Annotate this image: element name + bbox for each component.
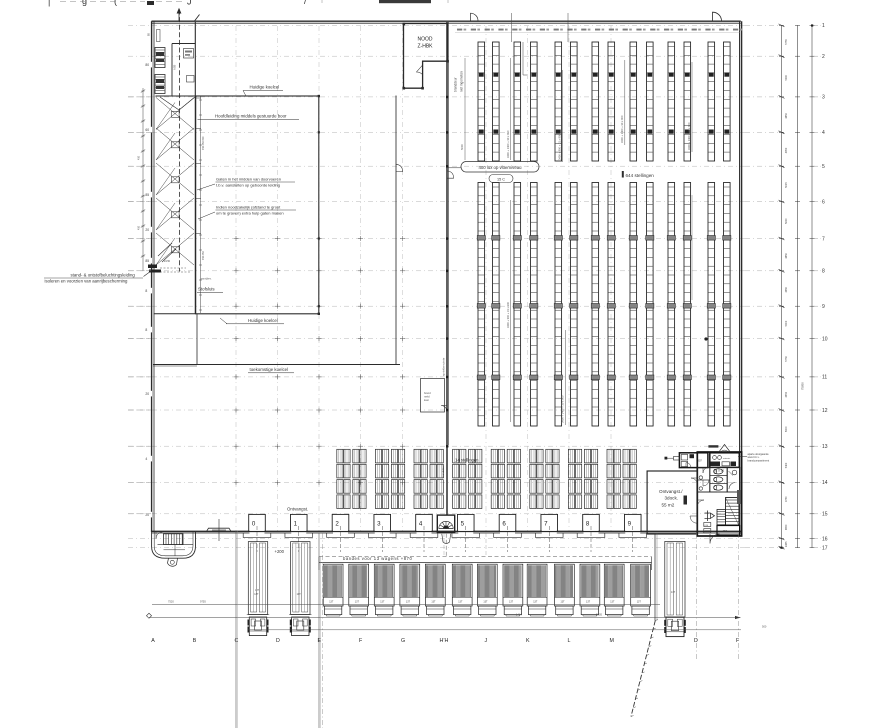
svg-text:D: D xyxy=(276,638,280,644)
svg-text:7: 7 xyxy=(822,236,825,242)
svg-text:85: 85 xyxy=(145,193,149,197)
svg-text:4: 4 xyxy=(145,457,147,461)
svg-text:3400 + 1400 + 30 x 900: 3400 + 1400 + 30 x 900 xyxy=(561,395,565,423)
svg-text:14: 14 xyxy=(822,480,828,486)
svg-text:t.b.v. aansluiten op geboorde: t.b.v. aansluiten op geboorde leiding xyxy=(216,183,280,188)
svg-text:isoleren en voorzien van aanri: isoleren en voorzien van aanrijbeschermi… xyxy=(45,279,128,284)
svg-text:13T: 13T xyxy=(533,601,538,604)
svg-text:urinoirs: urinoirs xyxy=(723,457,731,460)
svg-text:Stofsluis: Stofsluis xyxy=(198,286,215,291)
svg-text:484: 484 xyxy=(723,529,728,533)
svg-text:12: 12 xyxy=(822,408,828,414)
svg-text:13T: 13T xyxy=(586,601,591,604)
svg-text:sprinklerruimte: sprinklerruimte xyxy=(442,357,446,376)
svg-text:60: 60 xyxy=(145,128,149,132)
svg-text:H’H: H’H xyxy=(440,638,449,644)
svg-text:80: 80 xyxy=(145,63,149,67)
svg-text:13T: 13T xyxy=(610,601,615,604)
svg-text:Gaten in het midden van doorvo: Gaten in het midden van doorvoeren xyxy=(216,177,281,182)
svg-text:13T: 13T xyxy=(509,601,514,604)
svg-text:5755: 5755 xyxy=(785,39,788,45)
svg-text:15: 15 xyxy=(822,512,828,518)
svg-text:3400 + 1400 + 30 x 900: 3400 + 1400 + 30 x 900 xyxy=(620,115,624,143)
svg-text:8: 8 xyxy=(145,289,147,293)
svg-text:3650: 3650 xyxy=(785,524,788,530)
svg-text:5400: 5400 xyxy=(785,462,788,468)
svg-text:D: D xyxy=(694,638,698,644)
svg-text:3: 3 xyxy=(377,521,381,528)
svg-text:85: 85 xyxy=(145,259,149,263)
svg-text:9: 9 xyxy=(822,304,825,310)
svg-text:5000: 5000 xyxy=(785,426,788,432)
svg-text:aanrijbev.: aanrijbev. xyxy=(201,277,212,281)
svg-text:3: 3 xyxy=(822,95,825,101)
svg-text:17: 17 xyxy=(822,546,828,552)
svg-text:Z-HBK: Z-HBK xyxy=(418,44,434,50)
svg-text:L: L xyxy=(568,638,571,644)
svg-text:13T: 13T xyxy=(458,601,463,604)
svg-text:75850: 75850 xyxy=(801,382,805,390)
svg-text:4850: 4850 xyxy=(785,112,788,118)
svg-text:500: 500 xyxy=(762,625,767,629)
svg-text:1385: 1385 xyxy=(785,541,788,547)
svg-text:5005: 5005 xyxy=(785,182,788,188)
svg-text:4: 4 xyxy=(822,130,825,136)
svg-text:3400 + 1400 + 30 x 900: 3400 + 1400 + 30 x 900 xyxy=(687,122,691,150)
svg-text:5000: 5000 xyxy=(785,218,788,224)
svg-text:16: 16 xyxy=(822,536,828,542)
svg-text:13T: 13T xyxy=(355,601,360,604)
svg-text:4850: 4850 xyxy=(785,252,788,258)
svg-text:brandcompartiment: brandcompartiment xyxy=(748,459,770,462)
svg-text:644 stellingen: 644 stellingen xyxy=(626,173,655,178)
svg-text:13T: 13T xyxy=(329,601,334,604)
svg-text:7520: 7520 xyxy=(168,600,174,604)
svg-text:13T: 13T xyxy=(637,601,642,604)
svg-text:8: 8 xyxy=(586,521,590,528)
svg-text:|: | xyxy=(48,0,50,7)
svg-text:13T: 13T xyxy=(431,601,436,604)
svg-text:13T: 13T xyxy=(671,591,676,594)
svg-text:ASB: ASB xyxy=(173,65,177,70)
svg-text:Hoofdleiding middels gestuurde: Hoofdleiding middels gestuurde boor xyxy=(215,114,287,119)
svg-text:2: 2 xyxy=(822,54,825,60)
svg-text:5000: 5000 xyxy=(785,74,788,80)
svg-text:5005: 5005 xyxy=(596,613,602,617)
svg-text:11: 11 xyxy=(822,375,827,381)
svg-text:7: 7 xyxy=(544,521,548,528)
svg-text:5000: 5000 xyxy=(460,144,464,150)
svg-text:E: E xyxy=(318,638,322,644)
svg-text:g: g xyxy=(82,0,87,6)
svg-text:+200: +200 xyxy=(275,549,285,554)
svg-text:4950: 4950 xyxy=(785,147,788,153)
svg-text:1: 1 xyxy=(294,521,298,528)
svg-text:brand: brand xyxy=(424,391,431,395)
svg-text:5750: 5750 xyxy=(785,356,788,362)
svg-text:1414: 1414 xyxy=(516,613,522,617)
svg-text:3dock.: 3dock. xyxy=(665,496,679,501)
svg-text:13: 13 xyxy=(822,444,828,450)
svg-text:Ontvangst./: Ontvangst./ xyxy=(659,489,683,494)
svg-text:450 450 450: 450 450 450 xyxy=(202,136,205,150)
svg-text:13T: 13T xyxy=(254,593,259,596)
svg-text:24.50: 24.50 xyxy=(164,260,171,263)
svg-text:2: 2 xyxy=(335,521,339,528)
svg-text:9755: 9755 xyxy=(200,600,206,604)
svg-text:K: K xyxy=(526,638,530,644)
svg-text:(: ( xyxy=(114,0,117,6)
svg-text:13T: 13T xyxy=(483,601,488,604)
svg-text:8: 8 xyxy=(822,269,825,275)
svg-text:meld: meld xyxy=(424,395,430,399)
svg-text:450: 450 xyxy=(138,155,141,160)
svg-text:0: 0 xyxy=(252,521,256,528)
svg-text:Ontvangst.: Ontvangst. xyxy=(287,507,308,512)
svg-text:Huidige koelcel: Huidige koelcel xyxy=(250,85,280,90)
svg-text:13T: 13T xyxy=(255,589,260,592)
svg-text:10: 10 xyxy=(822,336,828,342)
svg-text:G: G xyxy=(401,638,405,644)
svg-text:toekomstige koelcel: toekomstige koelcel xyxy=(250,367,289,372)
svg-text:bandes voor 13 wagens +870: bandes voor 13 wagens +870 xyxy=(343,556,412,561)
svg-text:branddeur: branddeur xyxy=(454,77,458,92)
svg-text:NOOD: NOOD xyxy=(418,37,433,43)
svg-text:3400 + 900 + 31 x 900: 3400 + 900 + 31 x 900 xyxy=(506,301,510,328)
svg-text:6: 6 xyxy=(502,521,506,528)
svg-text:3400 + 1400 + 30 x 900: 3400 + 1400 + 30 x 900 xyxy=(506,130,510,158)
svg-text:20: 20 xyxy=(145,392,149,396)
svg-text:4750: 4750 xyxy=(785,496,788,502)
svg-text:307: 307 xyxy=(698,459,703,463)
svg-text:B: B xyxy=(193,638,197,644)
svg-text:9: 9 xyxy=(628,521,632,528)
svg-text:Huidige koelcel: Huidige koelcel xyxy=(248,318,278,323)
svg-text:4950: 4950 xyxy=(785,391,788,397)
svg-text:450 450: 450 450 xyxy=(202,251,205,260)
svg-text:C: C xyxy=(235,638,239,644)
svg-text:400 lux op vloerniveau: 400 lux op vloerniveau xyxy=(479,165,523,170)
svg-text:13T: 13T xyxy=(561,601,566,604)
svg-text:15 C: 15 C xyxy=(497,178,505,182)
svg-text:13T: 13T xyxy=(406,601,411,604)
svg-text:13T: 13T xyxy=(297,593,302,596)
svg-text:5: 5 xyxy=(461,521,465,528)
svg-text:J: J xyxy=(187,0,192,7)
svg-text:20: 20 xyxy=(145,228,149,232)
svg-text:3400 + 900 + 31 x 900: 3400 + 900 + 31 x 900 xyxy=(558,133,562,160)
svg-text:13T: 13T xyxy=(380,601,385,604)
svg-text:4950: 4950 xyxy=(785,286,788,292)
svg-text:J: J xyxy=(485,638,488,644)
svg-text:6: 6 xyxy=(822,199,825,205)
svg-text:om te graven) extra hulp gaten: om te graven) extra hulp gaten maken xyxy=(216,211,284,216)
svg-text:5: 5 xyxy=(822,164,825,170)
svg-text:A: A xyxy=(151,638,155,644)
svg-text:4: 4 xyxy=(419,521,423,528)
svg-text:stand- & ontstofbeluchtingslei: stand- & ontstofbeluchtingsleiding xyxy=(71,272,136,277)
svg-text:Indien noodzakelijk (afstand t: Indien noodzakelijk (afstand te groot xyxy=(216,205,281,210)
svg-text:M: M xyxy=(610,638,614,644)
svg-text:55 m2: 55 m2 xyxy=(662,502,675,507)
svg-text:8: 8 xyxy=(145,328,147,332)
svg-text:5000: 5000 xyxy=(785,320,788,326)
svg-text:1: 1 xyxy=(822,23,825,29)
svg-text:kast: kast xyxy=(424,398,429,402)
svg-text:niet ingemeten: niet ingemeten xyxy=(460,71,464,92)
svg-text:450: 450 xyxy=(138,225,141,230)
